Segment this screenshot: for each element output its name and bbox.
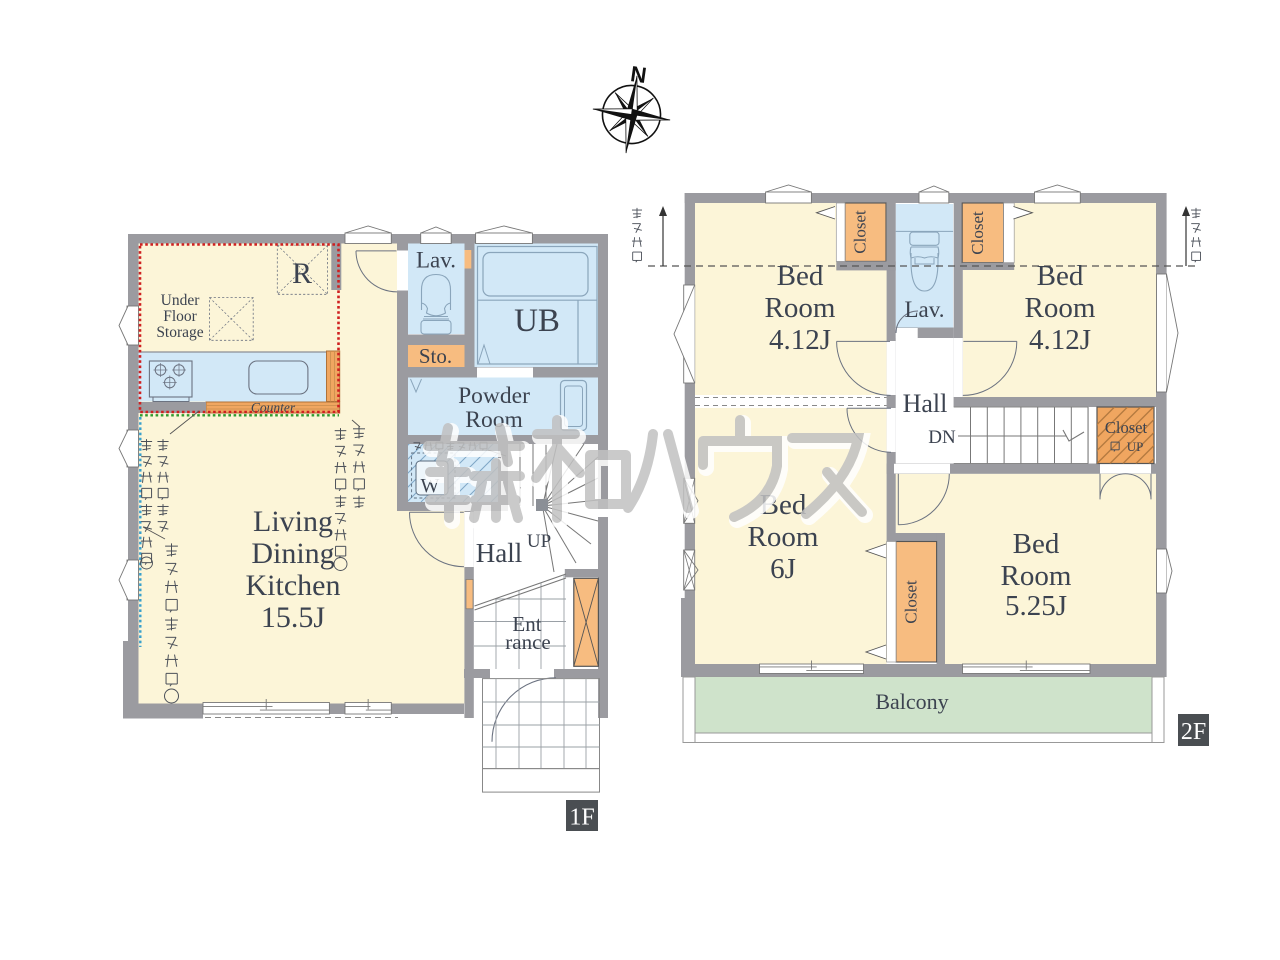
svg-text:4.12J: 4.12J [769, 324, 831, 356]
svg-text:Storage: Storage [156, 324, 203, 341]
svg-text:Hall: Hall [903, 389, 948, 418]
svg-text:15.5J: 15.5J [261, 601, 326, 634]
svg-text:Room: Room [748, 521, 819, 553]
svg-text:1F: 1F [569, 805, 594, 831]
svg-text:Bed: Bed [777, 260, 824, 292]
svg-text:4.12J: 4.12J [1029, 324, 1091, 356]
svg-text:UP: UP [1127, 439, 1144, 454]
svg-text:6J: 6J [770, 553, 796, 585]
svg-text:Room: Room [1025, 292, 1096, 324]
svg-text:Room: Room [765, 292, 836, 324]
svg-text:Room: Room [1001, 560, 1072, 592]
svg-text:5.25J: 5.25J [1005, 590, 1067, 622]
svg-text:Balcony: Balcony [875, 689, 948, 714]
svg-text:Bed: Bed [1037, 260, 1084, 292]
svg-text:rance: rance [505, 630, 550, 654]
svg-text:Kitchen: Kitchen [246, 569, 341, 602]
svg-text:Living: Living [253, 505, 333, 538]
svg-text:DN: DN [928, 427, 956, 448]
svg-text:Powder: Powder [458, 383, 530, 409]
svg-text:Counter: Counter [251, 400, 296, 415]
svg-text:Closet: Closet [851, 210, 870, 254]
svg-text:2F: 2F [1181, 719, 1206, 745]
svg-text:Closet: Closet [901, 580, 920, 624]
svg-text:Closet: Closet [968, 211, 987, 255]
svg-text:UP: UP [527, 531, 551, 552]
svg-text:Room: Room [465, 407, 522, 433]
svg-text:UB: UB [514, 303, 560, 339]
svg-text:Lav.: Lav. [904, 297, 944, 322]
svg-text:Sto.: Sto. [419, 344, 452, 368]
svg-text:Floor: Floor [163, 308, 197, 325]
svg-text:Closet: Closet [1105, 418, 1148, 437]
svg-text:Lav.: Lav. [416, 248, 456, 273]
svg-text:Hall: Hall [476, 538, 523, 568]
svg-text:Bed: Bed [1013, 528, 1060, 560]
svg-text:Dining: Dining [251, 537, 334, 570]
svg-text:R: R [292, 257, 312, 290]
svg-text:Under: Under [161, 292, 201, 309]
